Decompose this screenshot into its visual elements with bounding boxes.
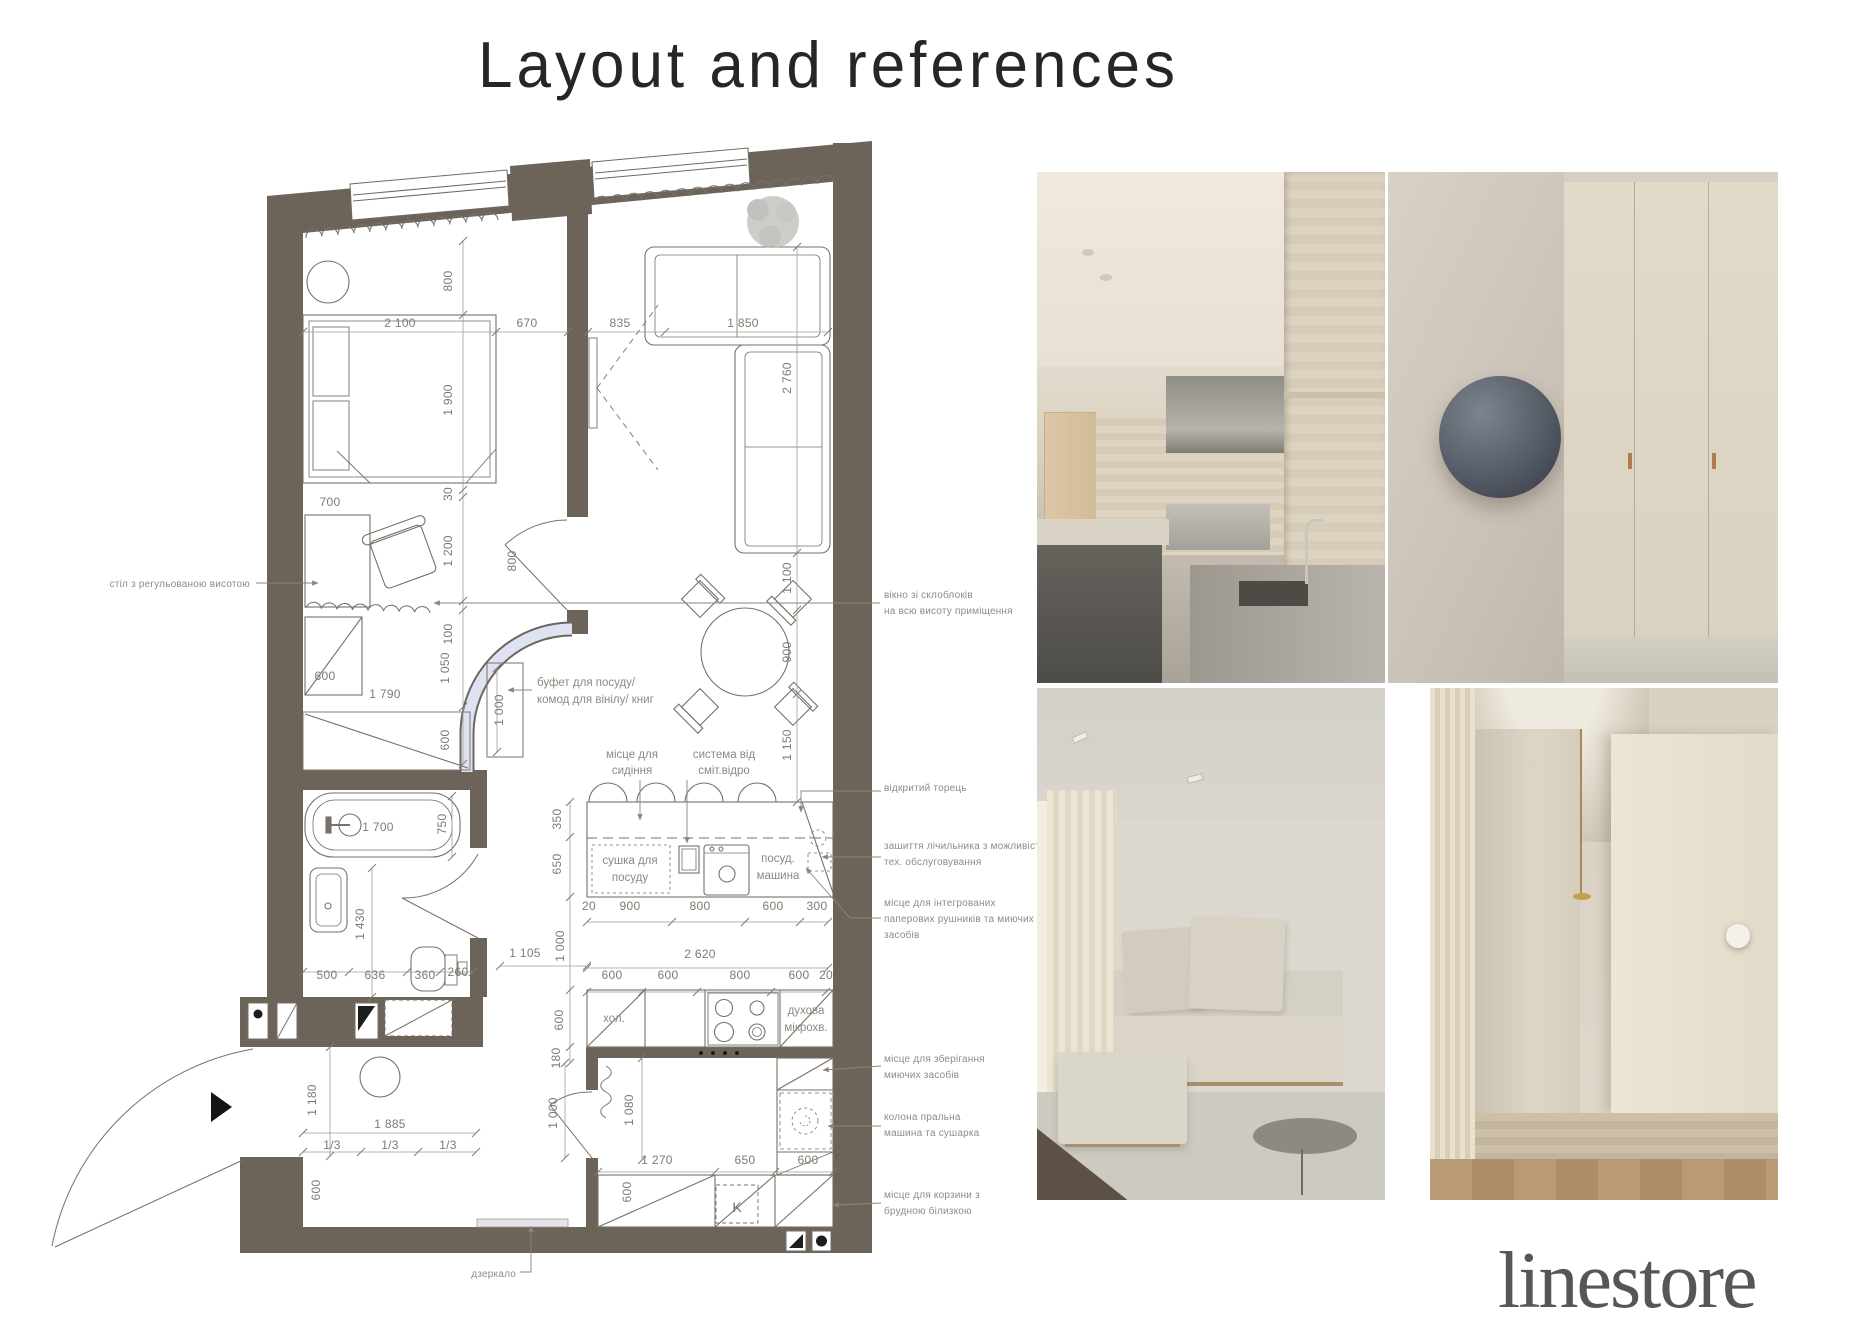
ottoman-legs xyxy=(1065,1144,1180,1147)
plan-text: брудною білизкою xyxy=(884,1205,972,1217)
plan-text: 900 xyxy=(780,642,794,663)
plan-text: 1 050 xyxy=(438,652,452,684)
plan-text: 1 080 xyxy=(622,1094,636,1126)
travertine-seam xyxy=(1284,392,1385,398)
plan-text: 30 xyxy=(441,487,455,501)
plan-text: 1 700 xyxy=(362,820,394,834)
plan-text: колона пральна xyxy=(884,1112,961,1123)
presentation-slide: Layout and references xyxy=(0,0,1861,1335)
door-handle xyxy=(1712,453,1716,469)
floor-plan: 8002 1006708351 8501 9002 760307001 2008… xyxy=(40,125,1040,1315)
plan-text: 1 180 xyxy=(305,1084,319,1116)
plan-text: 500 xyxy=(317,968,338,982)
plan-text: 180 xyxy=(549,1048,563,1069)
curtain xyxy=(1430,688,1475,1200)
plan-text: 300 xyxy=(807,899,828,913)
plan-text: 800 xyxy=(441,271,455,292)
plan-text: паперових рушників та миючих xyxy=(884,914,1034,925)
plan-text: 800 xyxy=(690,899,711,913)
plan-text: 1 270 xyxy=(641,1153,673,1167)
plan-text: 600 xyxy=(309,1180,323,1201)
plan-text: місце для зберігання xyxy=(884,1053,985,1065)
plan-text: місце для xyxy=(606,749,658,761)
plan-text: машина та сушарка xyxy=(884,1128,980,1139)
plan-text: місце для корзини з xyxy=(884,1190,980,1201)
faucet xyxy=(1305,519,1324,583)
floor xyxy=(1564,637,1779,683)
plan-text: 1 000 xyxy=(553,930,567,962)
plan-text: 360 xyxy=(415,968,436,982)
plan-text: 260 xyxy=(448,965,469,979)
plan-text: сміт.відро xyxy=(698,765,750,777)
plan-text: 600 xyxy=(798,1153,819,1167)
plan-text: 800 xyxy=(730,968,751,982)
door-seam xyxy=(1634,182,1635,642)
plan-text: 1 900 xyxy=(441,384,455,416)
plan-text: 1 150 xyxy=(780,729,794,761)
wood-floor xyxy=(1430,1159,1778,1200)
plan-text: 100 xyxy=(441,624,455,645)
plan-text: 1 885 xyxy=(374,1117,406,1131)
plan-text: 600 xyxy=(602,968,623,982)
plan-text: хол. xyxy=(603,1013,625,1025)
pendant-cord xyxy=(1580,729,1582,893)
plan-doors xyxy=(52,520,592,1247)
plan-text: 750 xyxy=(435,814,449,835)
plan-text: 20 xyxy=(819,968,833,982)
plan-text: 900 xyxy=(620,899,641,913)
plan-text: тех. обслуговування xyxy=(884,856,981,868)
steel-cabinet xyxy=(1166,504,1270,550)
counter-sink xyxy=(1239,581,1309,607)
plant xyxy=(747,196,799,248)
mirror xyxy=(477,1219,568,1227)
coffee-table-leg xyxy=(1301,1149,1303,1195)
plan-text: 650 xyxy=(550,854,564,875)
ceiling-spot xyxy=(1100,274,1112,281)
door-seam xyxy=(1708,182,1709,642)
plan-text: 1/3 xyxy=(323,1138,341,1152)
plan-text: 700 xyxy=(320,495,341,509)
plan-text: 636 xyxy=(365,968,386,982)
plan-text: 650 xyxy=(735,1153,756,1167)
plan-text: 1 430 xyxy=(353,908,367,940)
reference-photo-living-room xyxy=(1037,688,1385,1200)
entry-arrow-marker xyxy=(211,1092,232,1122)
plan-text: 600 xyxy=(438,730,452,751)
brand-logo: linestore xyxy=(1498,1236,1755,1327)
plan-text: миючих засобів xyxy=(884,1069,959,1081)
page-title: Layout and references xyxy=(478,29,1179,103)
plan-text: дзеркало xyxy=(471,1269,516,1280)
plan-text: 800 xyxy=(505,551,519,572)
plan-text: на всю висоту приміщення xyxy=(884,606,1013,617)
steel-hood xyxy=(1166,376,1284,453)
niche-shadow xyxy=(1475,729,1579,1139)
plan-text: 600 xyxy=(658,968,679,982)
door-handle xyxy=(1628,453,1632,469)
plan-text: 2 100 xyxy=(384,316,416,330)
sofa-cushion xyxy=(1189,917,1286,1012)
plan-text: 600 xyxy=(315,669,336,683)
plan-text: мікрохв. xyxy=(784,1022,827,1034)
plan-text: духова xyxy=(788,1005,825,1017)
plan-text: 600 xyxy=(620,1182,634,1203)
plan-text: зашиття лічильника з можливістю xyxy=(884,841,1040,852)
plan-text: стіл з регульованою висотою xyxy=(110,579,251,590)
ottoman xyxy=(1058,1052,1187,1144)
plan-text: посуд. xyxy=(761,853,795,865)
pendant-lamp xyxy=(1573,893,1591,900)
plan-text: 1 200 xyxy=(441,535,455,567)
furniture-living xyxy=(487,196,830,757)
plan-text: 670 xyxy=(517,316,538,330)
plan-text: 1 105 xyxy=(509,946,541,960)
reference-photo-hallway xyxy=(1430,688,1778,1200)
plan-text: 1 000 xyxy=(492,694,506,726)
plan-text: K xyxy=(732,1199,742,1215)
plan-text: буфет для посуду/ xyxy=(537,677,636,689)
plan-text: відкритий торець xyxy=(884,783,967,794)
island-top xyxy=(1037,519,1169,545)
plan-text: 600 xyxy=(552,1010,566,1031)
plan-text: 600 xyxy=(789,968,810,982)
wardrobe-doors xyxy=(1564,182,1779,642)
ceiling-spot xyxy=(1082,249,1094,256)
plan-text: 2 620 xyxy=(684,947,716,961)
plan-text: система від xyxy=(693,749,756,761)
plan-text: машина xyxy=(757,870,800,882)
travertine-step xyxy=(1475,1113,1778,1159)
round-speaker xyxy=(1439,376,1561,498)
plan-text: 350 xyxy=(550,809,564,830)
plan-text: 1/3 xyxy=(439,1138,457,1152)
plan-text: сидіння xyxy=(612,765,652,777)
plan-text: 835 xyxy=(610,316,631,330)
round-sconce xyxy=(1726,924,1750,948)
plan-text: 600 xyxy=(763,899,784,913)
plan-text: посуду xyxy=(612,872,648,884)
plan-text: 1 790 xyxy=(369,687,401,701)
plan-text: місце для інтегрованих xyxy=(884,898,996,909)
reference-photo-kitchen xyxy=(1037,172,1385,683)
plan-text: вікно зі склоблоків xyxy=(884,589,973,601)
island-base xyxy=(1037,545,1162,683)
plan-text: 1/3 xyxy=(381,1138,399,1152)
plan-text: комод для вінілу/ книг xyxy=(537,694,654,706)
plan-text: 20 xyxy=(582,899,596,913)
plan-text: 1 000 xyxy=(546,1097,560,1129)
plan-text: сушка для xyxy=(602,855,657,867)
plan-text: 1 850 xyxy=(727,316,759,330)
coffee-table xyxy=(1253,1118,1357,1154)
plan-text: засобів xyxy=(884,929,919,941)
plan-text: 1 100 xyxy=(780,562,794,594)
reference-photo-wardrobe xyxy=(1388,172,1778,683)
wall-panel xyxy=(1611,734,1778,1113)
plan-text: 2 760 xyxy=(780,362,794,394)
